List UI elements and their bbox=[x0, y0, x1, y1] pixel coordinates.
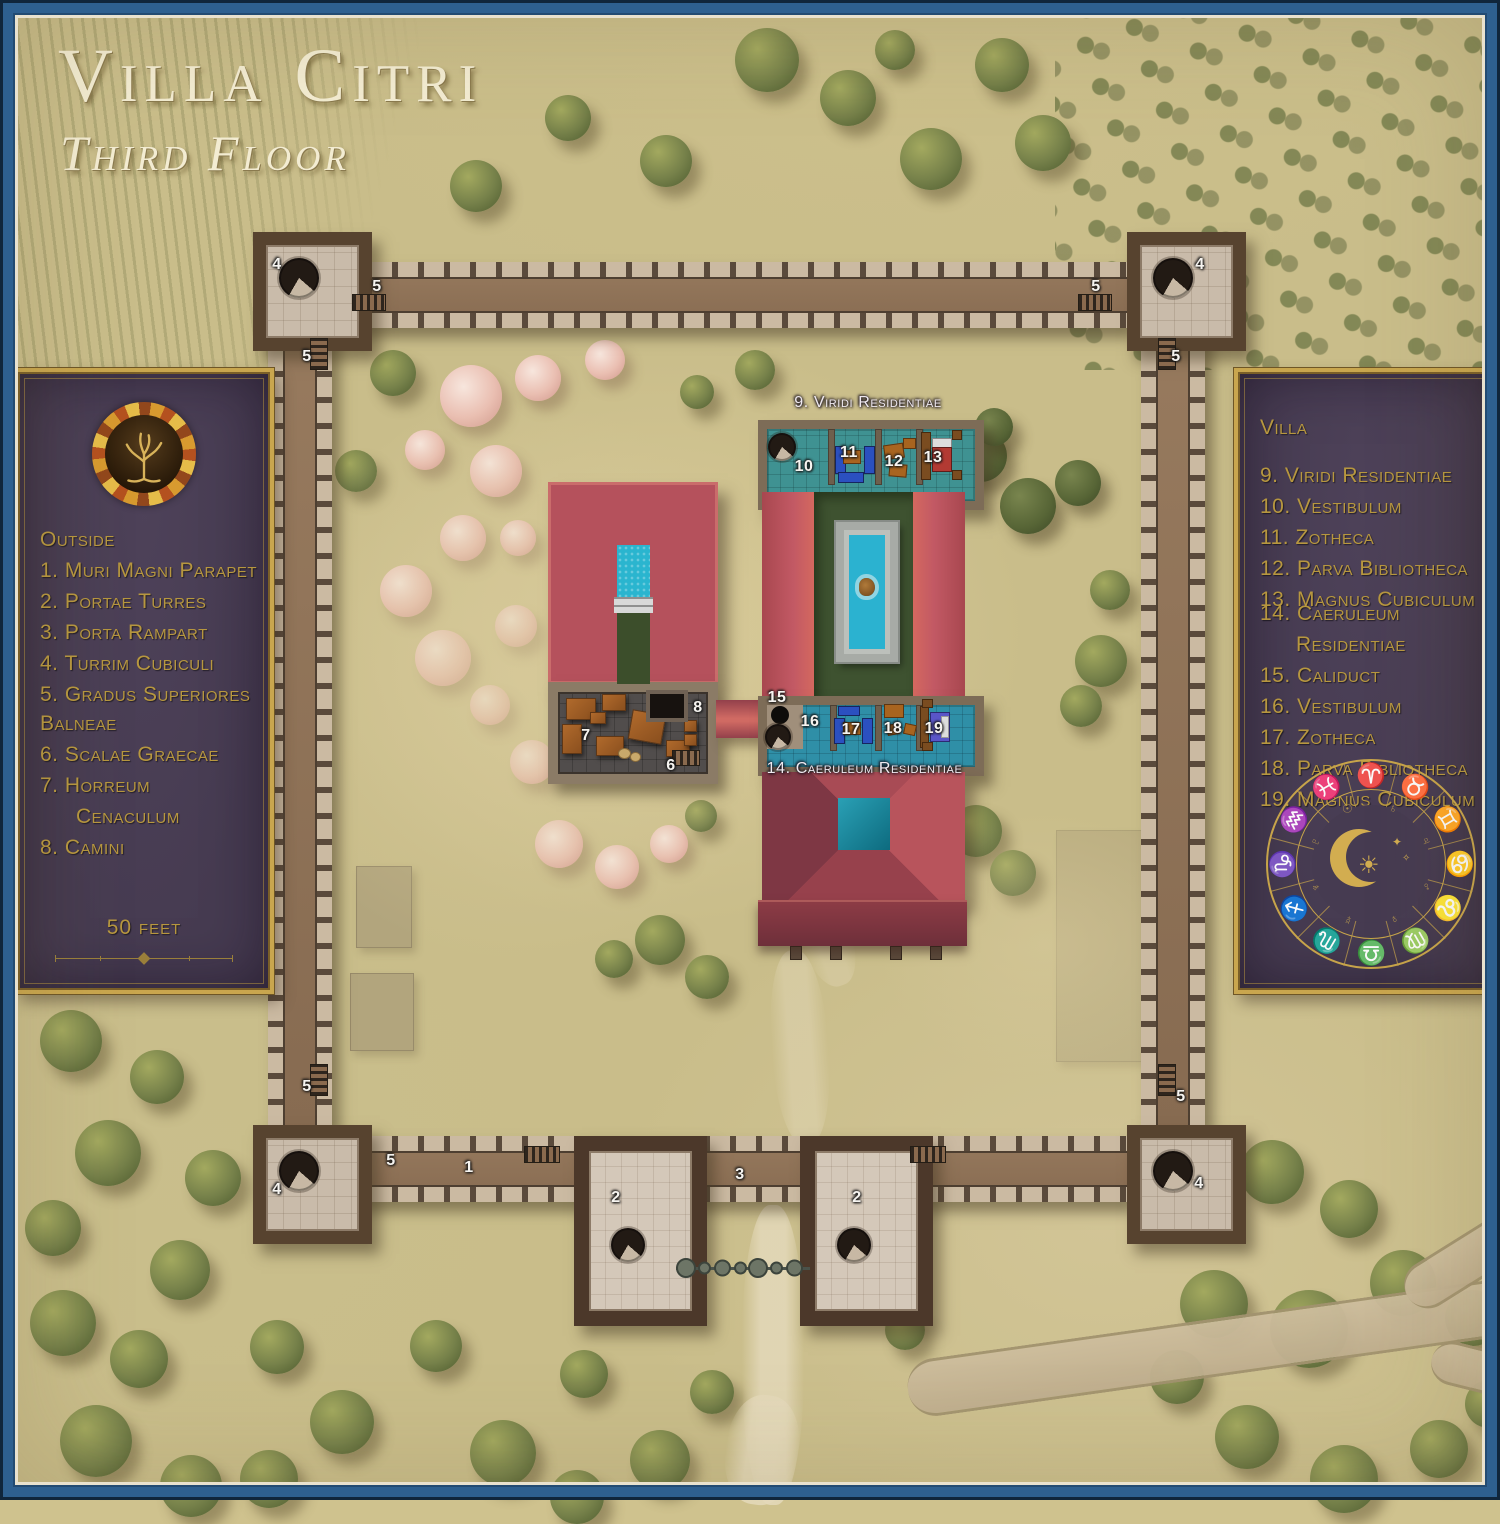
blossom-tree bbox=[440, 515, 486, 561]
tree bbox=[1240, 1140, 1304, 1204]
marker-stairs-5: 5 bbox=[1091, 278, 1100, 296]
legend-item: 3. Porta Rampart bbox=[40, 617, 260, 648]
legend-item: 2. Portae Turres bbox=[40, 586, 260, 617]
post bbox=[790, 946, 802, 960]
tree bbox=[160, 1455, 222, 1517]
legend-item: 4. Turrim Cubiculi bbox=[40, 648, 260, 679]
tree bbox=[30, 1290, 96, 1356]
tree bbox=[545, 95, 591, 141]
tree bbox=[685, 955, 729, 999]
legend-item: 8. Camini bbox=[40, 832, 260, 863]
zodiac-capricorn-icon: ♑ bbox=[1269, 849, 1298, 879]
scale-bar bbox=[55, 954, 233, 963]
marker-room-8: 8 bbox=[693, 699, 702, 717]
couch bbox=[864, 446, 875, 474]
zodiac-aries-icon: ♈ bbox=[1356, 762, 1386, 791]
tree bbox=[1310, 1445, 1378, 1513]
post bbox=[830, 946, 842, 960]
blossom-tree bbox=[500, 520, 536, 556]
marker-room-6: 6 bbox=[666, 757, 675, 775]
marker-stairs-5: 5 bbox=[386, 1152, 395, 1170]
caliduct-hole bbox=[771, 706, 789, 724]
legend-item: 9. Viridi Residentiae bbox=[1260, 460, 1480, 491]
caeruleum-label: 14. Caeruleum Residentiae bbox=[752, 760, 977, 778]
blossom-tree bbox=[595, 845, 639, 889]
blossom-tree bbox=[405, 430, 445, 470]
tree bbox=[1320, 1180, 1378, 1238]
legend-item: 10. Vestibulum bbox=[1260, 491, 1480, 522]
tree bbox=[735, 28, 799, 92]
tree bbox=[310, 1390, 374, 1454]
tree bbox=[410, 1320, 462, 1372]
blossom-tree bbox=[585, 340, 625, 380]
ghost-building bbox=[350, 973, 414, 1051]
nightstand bbox=[922, 742, 933, 751]
marker-room-11: 11 bbox=[840, 444, 858, 462]
tree bbox=[250, 1320, 304, 1374]
tree bbox=[640, 135, 692, 187]
legend-item: 14. Caeruleum bbox=[1260, 598, 1480, 629]
tree bbox=[1060, 685, 1102, 727]
map-subtitle: Third Floor bbox=[60, 124, 350, 182]
legend-panel-right: Villa 9. Viridi Residentiae 10. Vestibul… bbox=[1234, 368, 1494, 994]
tree bbox=[185, 1150, 241, 1206]
marker-tower-4: 4 bbox=[272, 256, 281, 274]
wall-stairs bbox=[1158, 1064, 1176, 1096]
sparkle-icon: ✧ bbox=[1402, 853, 1410, 864]
marker-stairs-5: 5 bbox=[1171, 348, 1180, 366]
tree bbox=[370, 350, 416, 396]
legend-panel-left: Outside 1. Muri Magni Parapet 2. Portae … bbox=[14, 368, 274, 994]
wall-stairs bbox=[524, 1146, 560, 1163]
tree bbox=[25, 1200, 81, 1256]
nightstand bbox=[952, 430, 962, 440]
wall-stairs bbox=[1078, 294, 1112, 311]
marker-room-16: 16 bbox=[801, 713, 820, 731]
nightstand bbox=[952, 470, 962, 480]
autumn-tree-icon bbox=[92, 402, 196, 506]
tree bbox=[1075, 635, 1127, 687]
legend-item: 7. Horreum bbox=[40, 770, 260, 801]
marker-stairs-5: 5 bbox=[302, 348, 311, 366]
viridi-label: 9. Viridi Residentiae bbox=[768, 394, 968, 412]
tree bbox=[635, 915, 685, 965]
pool-steps bbox=[614, 597, 653, 613]
ghost-building bbox=[356, 866, 412, 948]
tree bbox=[40, 1010, 102, 1072]
tree bbox=[560, 1350, 608, 1398]
east-wall bbox=[1141, 325, 1205, 1125]
marker-room-10: 10 bbox=[795, 458, 814, 476]
legend-item: 17. Zotheca bbox=[1260, 722, 1480, 753]
tree bbox=[75, 1120, 141, 1186]
tree bbox=[130, 1050, 184, 1104]
tree bbox=[1000, 478, 1056, 534]
tree bbox=[1055, 460, 1101, 506]
gate-tower-east bbox=[800, 1136, 933, 1326]
wall-stairs bbox=[910, 1146, 946, 1163]
camini-hearth bbox=[646, 690, 688, 722]
blossom-tree bbox=[415, 630, 471, 686]
legend-item: Residentiae bbox=[1260, 629, 1480, 660]
gate-chain bbox=[676, 1259, 810, 1277]
spiral-stair bbox=[279, 258, 319, 298]
spiral-stair bbox=[1153, 1151, 1193, 1191]
tree bbox=[875, 30, 915, 70]
legend-heading: Outside bbox=[40, 524, 260, 555]
tree bbox=[1015, 115, 1071, 171]
marker-gate-2: 2 bbox=[852, 1189, 861, 1207]
desk bbox=[884, 704, 904, 718]
zodiac-wheel-icon: ♈ ♉ ♊ ♋ ♌ ♍ ♎ ♏ ♐ ♑ ♒ ♓ ♄ ♃ ♂ ♀ ☿ ♆ ♇ ☉ … bbox=[1266, 759, 1476, 969]
crate bbox=[684, 734, 697, 746]
marker-room-12: 12 bbox=[885, 453, 904, 471]
marker-gate-2: 2 bbox=[611, 1189, 620, 1207]
legend-viridi-section: 9. Viridi Residentiae 10. Vestibulum 11.… bbox=[1260, 460, 1480, 615]
legend-item: Cenaculum bbox=[40, 801, 260, 832]
spiral-stair bbox=[768, 433, 796, 461]
room-divider bbox=[875, 705, 882, 751]
tree bbox=[550, 1470, 604, 1524]
nightstand bbox=[922, 699, 933, 708]
post bbox=[930, 946, 942, 960]
crate bbox=[602, 694, 626, 711]
tree bbox=[60, 1405, 132, 1477]
greek-stairs bbox=[672, 750, 700, 766]
bath-garden bbox=[617, 613, 650, 684]
legend-item: 15. Caliduct bbox=[1260, 660, 1480, 691]
south-block-eave bbox=[758, 900, 967, 946]
tree bbox=[690, 1370, 734, 1414]
tree bbox=[900, 128, 962, 190]
legend-villa-heading: Villa bbox=[1260, 412, 1480, 443]
spiral-stair bbox=[765, 724, 791, 750]
tree bbox=[1215, 1405, 1279, 1469]
blossom-tree bbox=[470, 445, 522, 497]
tree bbox=[150, 1240, 210, 1300]
spiral-stair bbox=[837, 1228, 871, 1262]
north-wall bbox=[346, 262, 1127, 328]
marker-stairs-5: 5 bbox=[372, 278, 381, 296]
marker-room-7: 7 bbox=[581, 727, 590, 745]
tree bbox=[110, 1330, 168, 1388]
post bbox=[890, 946, 902, 960]
map-title: Villa Citri bbox=[58, 38, 483, 114]
legend-item: 11. Zotheca bbox=[1260, 522, 1480, 553]
marker-stairs-5: 5 bbox=[1176, 1088, 1185, 1106]
scale-label: 50 feet bbox=[18, 916, 270, 940]
couch bbox=[838, 472, 864, 483]
zodiac-cancer-icon: ♋ bbox=[1445, 849, 1474, 879]
tree bbox=[990, 850, 1036, 896]
crate bbox=[562, 724, 582, 754]
crate bbox=[590, 712, 606, 724]
west-wall bbox=[268, 325, 332, 1125]
blossom-tree bbox=[650, 825, 688, 863]
blossom-tree bbox=[470, 685, 510, 725]
wall-stairs bbox=[310, 338, 328, 370]
sparkle-icon: ✦ bbox=[1392, 835, 1402, 849]
tree bbox=[680, 375, 714, 409]
spiral-stair bbox=[611, 1228, 645, 1262]
blossom-tree bbox=[380, 565, 432, 617]
tree bbox=[820, 70, 876, 126]
marker-tower-4: 4 bbox=[272, 1181, 281, 1199]
room-divider bbox=[828, 429, 835, 485]
fountain-statue bbox=[859, 578, 875, 596]
blossom-tree bbox=[515, 355, 561, 401]
room-divider bbox=[875, 429, 882, 485]
marker-tower-4: 4 bbox=[1194, 1175, 1203, 1193]
zodiac-libra-icon: ♎ bbox=[1356, 938, 1386, 967]
legend-item: 5. Gradus Superiores bbox=[40, 679, 260, 710]
marker-room-19: 19 bbox=[925, 720, 944, 738]
legend-item: 16. Vestibulum bbox=[1260, 691, 1480, 722]
chair bbox=[903, 438, 916, 449]
blossom-tree bbox=[440, 365, 502, 427]
tree bbox=[630, 1430, 690, 1490]
tree bbox=[335, 450, 377, 492]
courtyard-roof-east bbox=[913, 492, 965, 698]
tree bbox=[595, 940, 633, 978]
legend-item: 12. Parva Bibliotheca bbox=[1260, 553, 1480, 584]
marker-rampart-3: 3 bbox=[735, 1166, 744, 1184]
impluvium-pool bbox=[838, 798, 890, 850]
marker-room-17: 17 bbox=[842, 721, 861, 739]
legend-item: 6. Scalae Graecae bbox=[40, 739, 260, 770]
spiral-stair bbox=[1153, 258, 1193, 298]
tree bbox=[685, 800, 717, 832]
tree bbox=[1090, 570, 1130, 610]
roof-bridge bbox=[716, 700, 762, 738]
gate-tower-west bbox=[574, 1136, 707, 1326]
blossom-tree bbox=[535, 820, 583, 868]
tree bbox=[975, 38, 1029, 92]
couch bbox=[862, 718, 873, 744]
legend-balneae-section: Balneae 6. Scalae Graecae 7. Horreum Cen… bbox=[40, 708, 260, 863]
legend-outside-section: Outside 1. Muri Magni Parapet 2. Portae … bbox=[40, 524, 260, 710]
tree bbox=[1410, 1420, 1468, 1478]
marker-room-13: 13 bbox=[924, 449, 943, 467]
tree bbox=[240, 1450, 298, 1508]
couch bbox=[838, 706, 860, 716]
blossom-tree bbox=[495, 605, 537, 647]
spiral-stair bbox=[279, 1151, 319, 1191]
legend-item: 1. Muri Magni Parapet bbox=[40, 555, 260, 586]
sun-icon: ☀ bbox=[1358, 851, 1380, 880]
marker-stairs-5: 5 bbox=[302, 1078, 311, 1096]
tree bbox=[450, 160, 502, 212]
courtyard-roof-west bbox=[762, 492, 814, 698]
sack bbox=[630, 752, 641, 762]
marker-room-15: 15 bbox=[768, 689, 787, 707]
wall-stairs bbox=[352, 294, 386, 311]
marker-parapet-1: 1 bbox=[464, 1159, 473, 1177]
chair bbox=[903, 723, 917, 736]
marker-tower-4: 4 bbox=[1195, 256, 1204, 274]
tree bbox=[735, 350, 775, 390]
tree bbox=[470, 1420, 536, 1486]
wall-stairs bbox=[310, 1064, 328, 1096]
bath-pool bbox=[617, 545, 650, 597]
marker-room-18: 18 bbox=[884, 720, 903, 738]
legend-heading: Balneae bbox=[40, 708, 260, 739]
